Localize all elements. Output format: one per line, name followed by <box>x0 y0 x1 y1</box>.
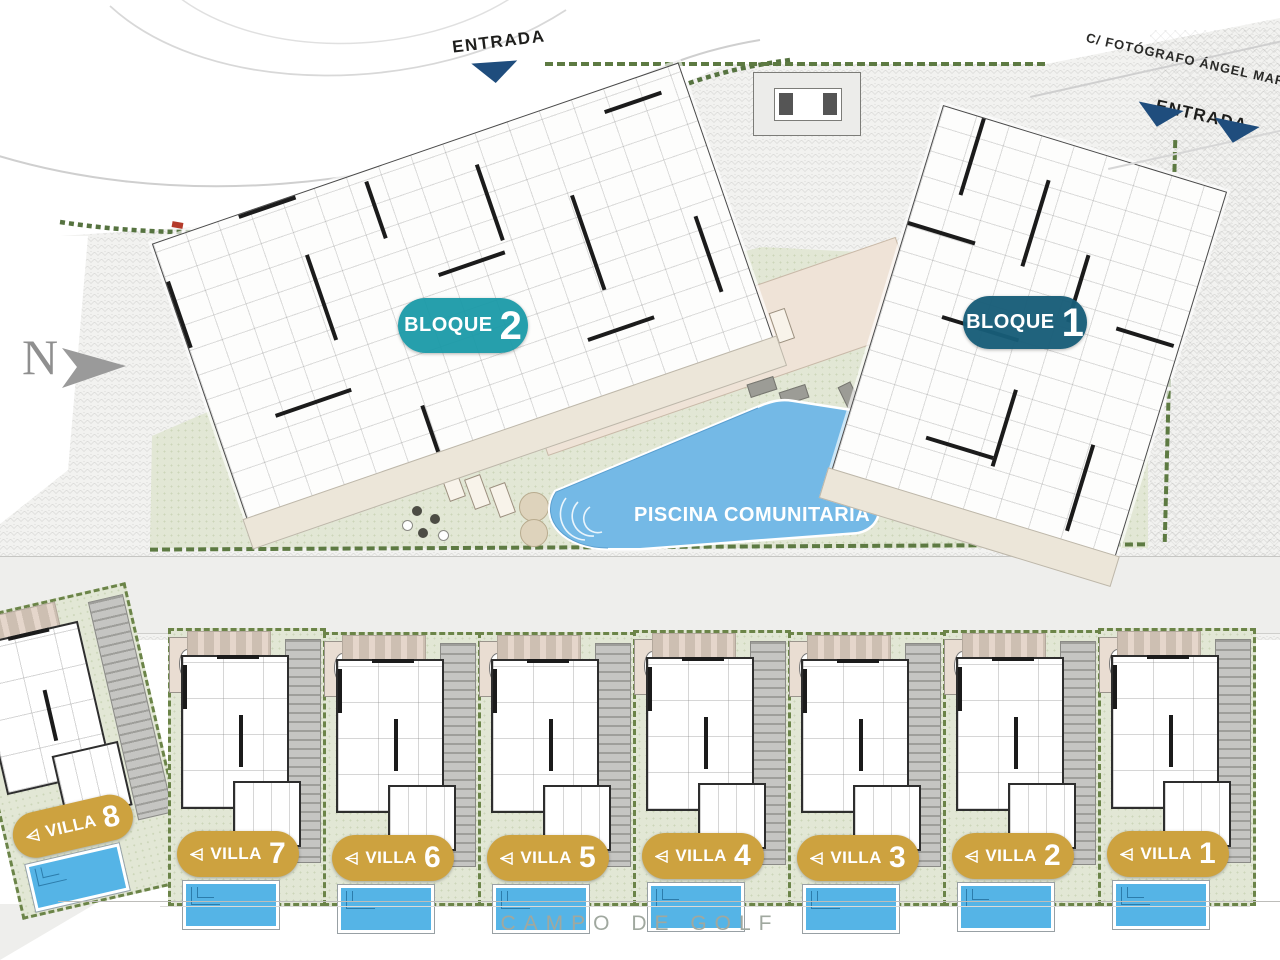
flag-icon <box>655 850 668 863</box>
pool-label: PISCINA COMUNITARIA <box>634 504 870 527</box>
villa1-plot: VILLA 1 <box>1098 628 1256 906</box>
villa-number: 8 <box>100 801 123 834</box>
bloque1-badge[interactable]: BLOQUE 1 <box>963 296 1087 349</box>
south-boundary <box>58 901 1280 902</box>
bloque2-label: BLOQUE <box>404 314 493 337</box>
villa-pool <box>1113 881 1209 929</box>
villa-pool <box>803 885 899 933</box>
villa-pool <box>338 885 434 933</box>
villa2-badge[interactable]: VILLA 2 <box>952 833 1074 879</box>
villa-label: VILLA <box>210 844 262 864</box>
villa2-plot: VILLA 2 <box>943 630 1101 906</box>
villa-number: 7 <box>269 839 286 869</box>
villa3-plot: VILLA 3 <box>788 632 946 906</box>
villa-pool <box>958 883 1054 931</box>
villa4-plot: VILLA 4 <box>633 630 791 906</box>
bloque1-label: BLOQUE <box>966 311 1055 334</box>
villa5-plot: VILLA 5 <box>478 632 636 906</box>
villa3-badge[interactable]: VILLA 3 <box>797 835 919 881</box>
flag-icon <box>965 850 978 863</box>
flag-icon <box>500 852 513 865</box>
north-arrow-icon <box>62 338 132 390</box>
villa1-badge[interactable]: VILLA 1 <box>1107 831 1229 877</box>
bloque2-number: 2 <box>500 306 522 346</box>
north-label: N <box>22 328 58 386</box>
villa-pool <box>183 881 279 929</box>
villa-label: VILLA <box>985 846 1037 866</box>
villa-number: 6 <box>424 843 441 873</box>
flag-icon <box>190 848 203 861</box>
villa7-badge[interactable]: VILLA 7 <box>177 831 299 877</box>
flag-icon <box>25 828 41 844</box>
villa-label: VILLA <box>830 848 882 868</box>
flag-icon <box>1120 848 1133 861</box>
villa-label: VILLA <box>1140 844 1192 864</box>
bloque2-badge[interactable]: BLOQUE 2 <box>398 298 528 353</box>
south-boundary <box>160 906 1250 907</box>
site-plan: PISCINA COMUNITARIA BLOQUE 2 BLOQUE 1 EN… <box>0 0 1280 960</box>
villa-label: VILLA <box>365 848 417 868</box>
villa4-badge[interactable]: VILLA 4 <box>642 833 764 879</box>
flag-icon <box>810 852 823 865</box>
villa-number: 4 <box>734 841 751 871</box>
villa-label: VILLA <box>675 846 727 866</box>
villa7-plot: VILLA 7 <box>168 628 326 906</box>
villa6-plot: VILLA 6 <box>323 632 481 906</box>
entrance-top-arrow <box>471 60 518 84</box>
villa-number: 2 <box>1044 841 1061 871</box>
villa6-badge[interactable]: VILLA 6 <box>332 835 454 881</box>
bloque1-number: 1 <box>1062 303 1084 343</box>
villa5-badge[interactable]: VILLA 5 <box>487 835 609 881</box>
villa-number: 1 <box>1199 839 1216 869</box>
flag-icon <box>345 852 358 865</box>
villa-number: 3 <box>889 843 906 873</box>
golf-label: CAMPO DE GOLF <box>500 912 779 936</box>
villa-number: 5 <box>579 843 596 873</box>
villa-label: VILLA <box>520 848 572 868</box>
villa-label: VILLA <box>44 811 99 842</box>
